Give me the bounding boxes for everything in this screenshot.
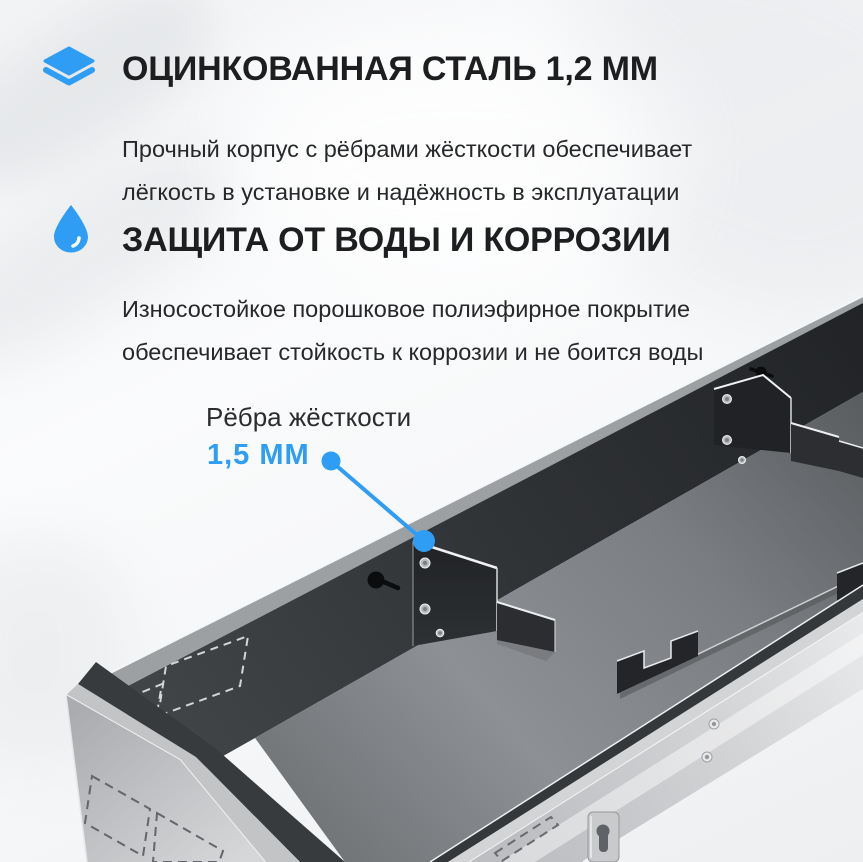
feature-description: Прочный корпус с рёбрами жёсткости обесп… (122, 128, 692, 214)
feature-description-line: Износостойкое порошковое полиэфирное пок… (122, 288, 703, 331)
feature-description: Износостойкое порошковое полиэфирное пок… (122, 288, 703, 374)
feature-title: ЗАЩИТА ОТ ВОДЫ И КОРРОЗИИ (122, 223, 671, 257)
feature-description-line: обеспечивает стойкость к коррозии и не б… (122, 331, 703, 374)
callout-label: Рёбра жёсткости (206, 402, 411, 433)
callout-value: 1,5 ММ (207, 439, 310, 472)
mounting-bracket (588, 812, 619, 862)
layers-icon (43, 46, 95, 88)
feature-description-line: Прочный корпус с рёбрами жёсткости обесп… (122, 128, 692, 171)
callout-leader-line (322, 452, 436, 553)
product-infographic: ОЦИНКОВАННАЯ СТАЛЬ 1,2 ММ Прочный корпус… (0, 0, 863, 862)
water-drop-icon (50, 204, 92, 253)
feature-description-line: лёгкость в установке и надёжность в эксп… (122, 171, 692, 214)
feature-title: ОЦИНКОВАННАЯ СТАЛЬ 1,2 ММ (122, 52, 658, 86)
